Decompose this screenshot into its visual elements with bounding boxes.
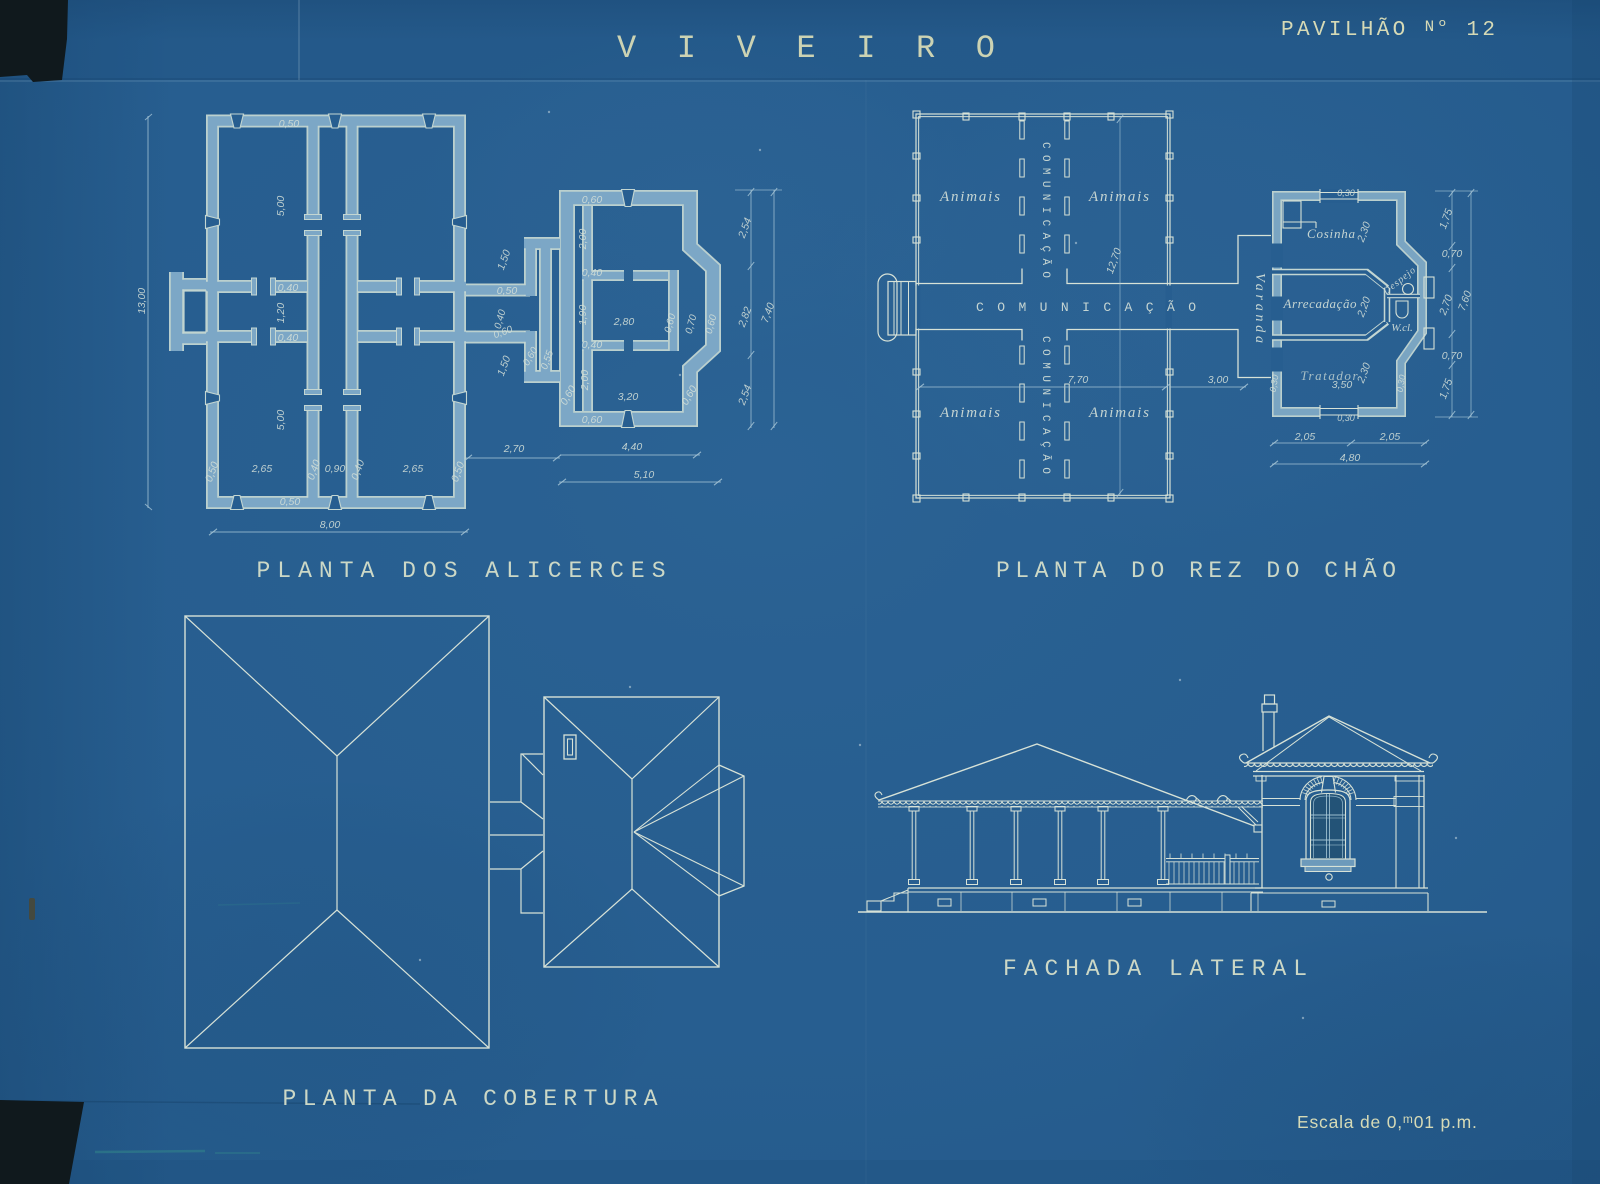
svg-text:2,05: 2,05 [1294, 431, 1316, 443]
svg-text:0,90: 0,90 [325, 463, 346, 475]
svg-text:5,00: 5,00 [275, 410, 287, 431]
svg-text:4,80: 4,80 [1340, 452, 1361, 464]
svg-text:0,30: 0,30 [1337, 188, 1355, 198]
svg-text:PLANTA DO REZ DO CHÃO: PLANTA DO REZ DO CHÃO [996, 557, 1396, 584]
svg-text:PAVILHÃO Nº 12: PAVILHÃO Nº 12 [1281, 17, 1497, 42]
svg-text:3,00: 3,00 [1208, 374, 1229, 386]
svg-text:3,20: 3,20 [618, 391, 639, 403]
svg-text:2,70: 2,70 [503, 443, 525, 455]
svg-text:Animais: Animais [1088, 189, 1149, 205]
svg-text:2,05: 2,05 [1379, 431, 1401, 443]
svg-text:2,65: 2,65 [251, 463, 273, 475]
svg-text:2,65: 2,65 [402, 463, 424, 475]
svg-text:1,20: 1,20 [275, 303, 287, 324]
svg-text:5,10: 5,10 [634, 469, 655, 481]
svg-text:0,40: 0,40 [278, 332, 299, 344]
svg-text:1,90: 1,90 [577, 305, 589, 326]
svg-text:2,00: 2,00 [579, 370, 591, 392]
svg-text:Animais: Animais [939, 189, 1000, 205]
svg-text:7,70: 7,70 [1068, 374, 1089, 386]
svg-text:Animais: Animais [1088, 405, 1149, 421]
svg-text:Escala de 0,m01 p.m.: Escala de 0,m01 p.m. [1297, 1112, 1478, 1132]
svg-text:Arrecadação: Arrecadação [1283, 296, 1358, 311]
svg-text:0,30: 0,30 [1337, 413, 1355, 423]
svg-text:2,00: 2,00 [577, 229, 589, 251]
svg-text:0,70: 0,70 [1442, 350, 1463, 362]
svg-text:2,80: 2,80 [613, 316, 635, 328]
svg-text:0,40: 0,40 [582, 267, 603, 279]
svg-text:4,40: 4,40 [622, 441, 643, 453]
svg-text:0,50: 0,50 [279, 118, 300, 130]
svg-text:13,00: 13,00 [136, 288, 148, 314]
svg-text:0,60: 0,60 [582, 414, 603, 426]
svg-text:W.cl.: W.cl. [1391, 322, 1413, 334]
svg-text:0,50: 0,50 [280, 496, 301, 508]
svg-text:FACHADA LATERAL: FACHADA LATERAL [1003, 956, 1307, 982]
svg-text:8,00: 8,00 [320, 519, 341, 531]
svg-text:Cosinha: Cosinha [1307, 226, 1356, 241]
svg-text:0,60: 0,60 [582, 194, 603, 206]
svg-text:0,40: 0,40 [582, 339, 603, 351]
svg-text:3,50: 3,50 [1332, 379, 1353, 391]
svg-text:0,70: 0,70 [1442, 248, 1463, 260]
svg-text:5,00: 5,00 [275, 196, 287, 217]
svg-text:0,50: 0,50 [497, 285, 518, 297]
svg-text:0,40: 0,40 [278, 282, 299, 294]
svg-text:Animais: Animais [939, 405, 1000, 421]
